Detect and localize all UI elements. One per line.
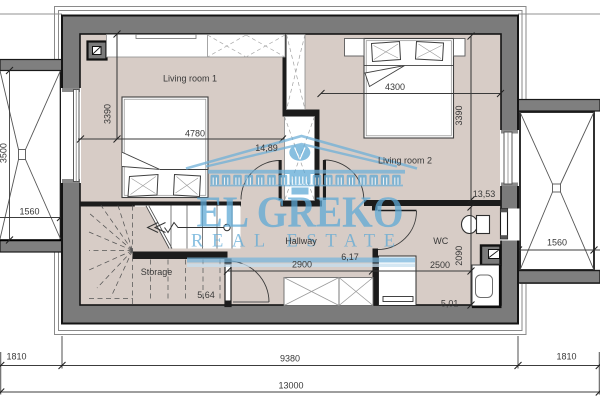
svg-text:EL GREKO: EL GREKO	[197, 188, 404, 237]
svg-text:3390: 3390	[103, 104, 113, 124]
svg-text:2090: 2090	[454, 246, 464, 266]
svg-text:4300: 4300	[385, 82, 405, 92]
svg-text:1810: 1810	[556, 352, 576, 362]
svg-text:5,64: 5,64	[197, 290, 215, 300]
svg-text:2900: 2900	[292, 260, 312, 270]
svg-text:3390: 3390	[454, 105, 464, 125]
svg-text:1560: 1560	[547, 238, 567, 248]
svg-text:WC: WC	[433, 236, 448, 246]
svg-text:1810: 1810	[6, 352, 26, 362]
svg-text:Storage: Storage	[141, 267, 173, 277]
svg-text:4780: 4780	[185, 129, 205, 139]
svg-text:Living room 1: Living room 1	[163, 74, 217, 84]
svg-text:Living room 2: Living room 2	[378, 156, 432, 166]
svg-text:13,53: 13,53	[473, 189, 496, 199]
svg-text:9380: 9380	[280, 354, 300, 364]
svg-text:2500: 2500	[430, 260, 450, 270]
svg-text:13000: 13000	[278, 381, 303, 391]
svg-text:Hallway: Hallway	[285, 236, 317, 246]
svg-text:3500: 3500	[0, 143, 9, 163]
svg-text:5,01: 5,01	[441, 298, 459, 308]
svg-text:6,17: 6,17	[341, 252, 359, 262]
svg-text:14,89: 14,89	[255, 143, 278, 153]
svg-text:1560: 1560	[19, 207, 39, 217]
